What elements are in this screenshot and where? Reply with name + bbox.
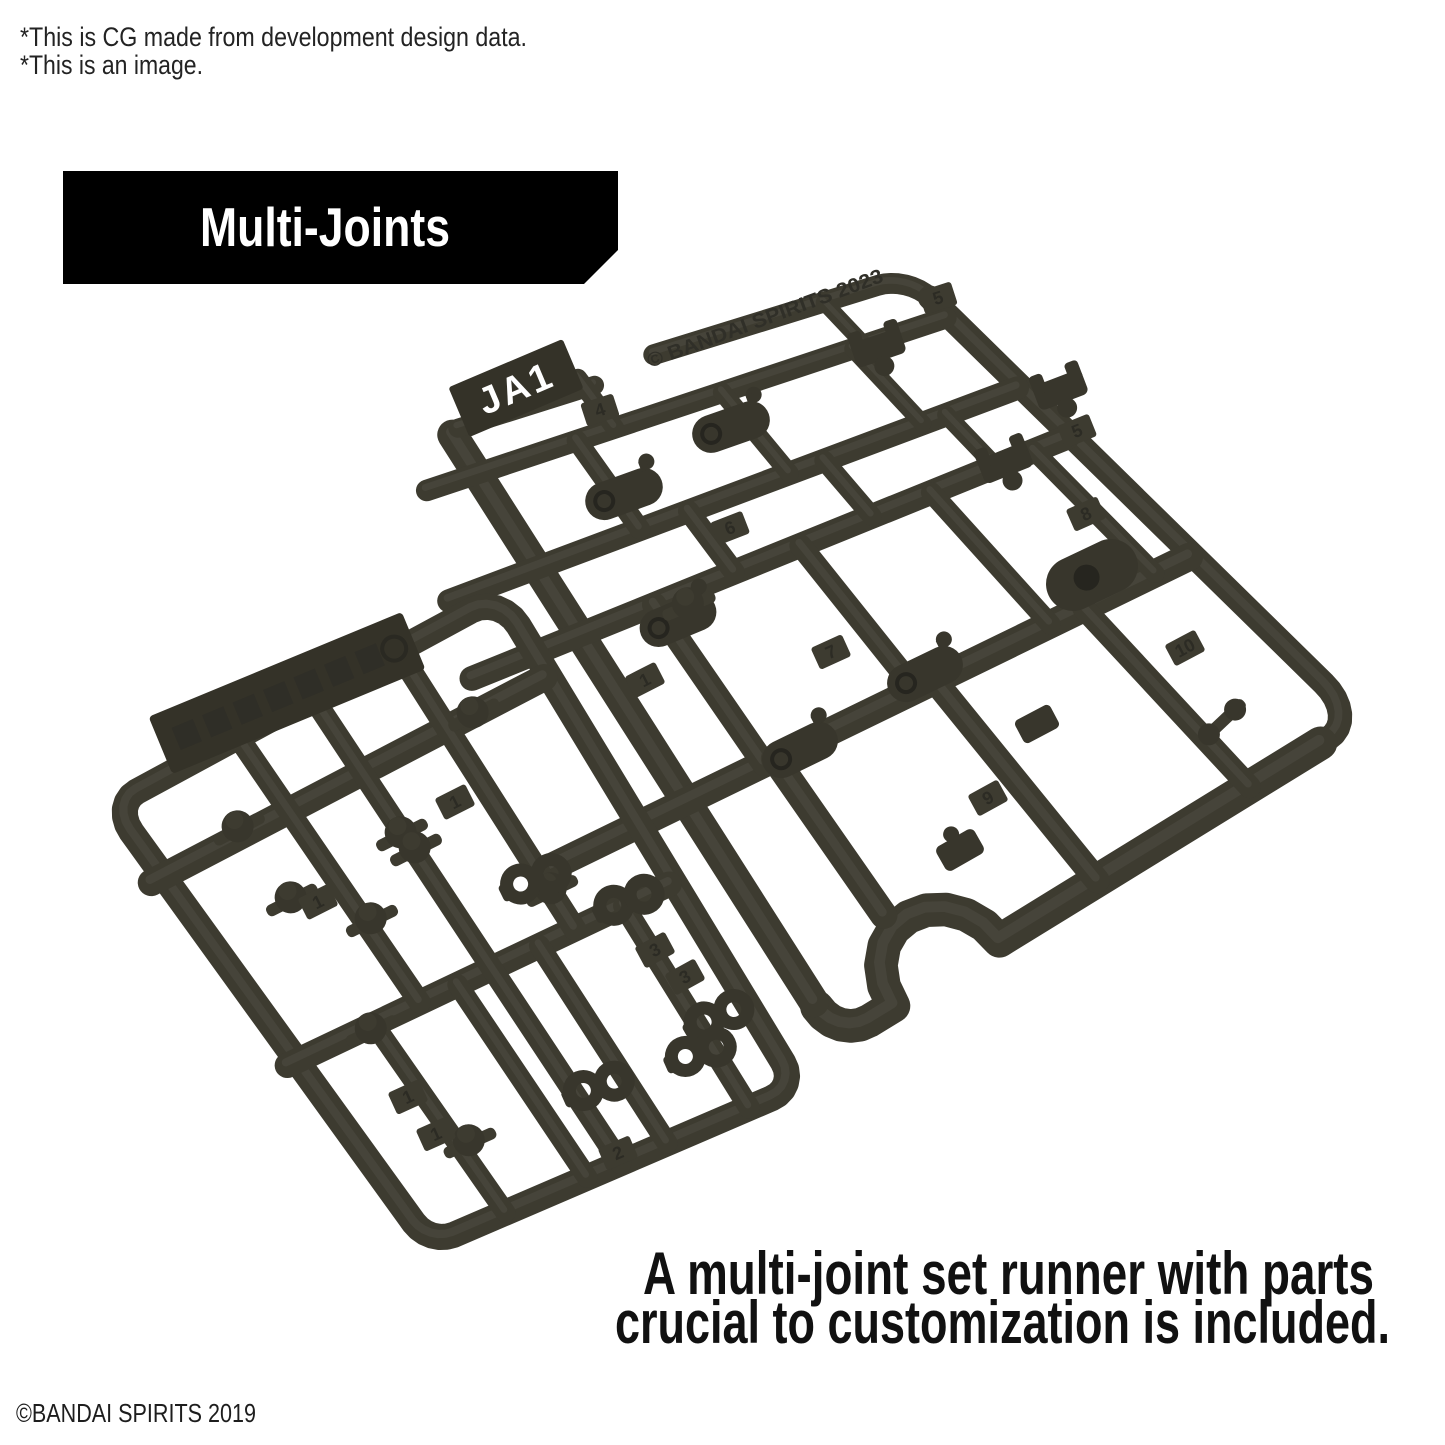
svg-text:crucial to customization is in: crucial to customization is included. (615, 1289, 1390, 1356)
svg-text:©BANDAI SPIRITS 2019: ©BANDAI SPIRITS 2019 (16, 1398, 256, 1428)
svg-text:*This is an image.: *This is an image. (20, 50, 203, 80)
svg-text:Multi-Joints: Multi-Joints (200, 196, 450, 258)
svg-text:*This is CG made from developm: *This is CG made from development design… (20, 22, 527, 52)
